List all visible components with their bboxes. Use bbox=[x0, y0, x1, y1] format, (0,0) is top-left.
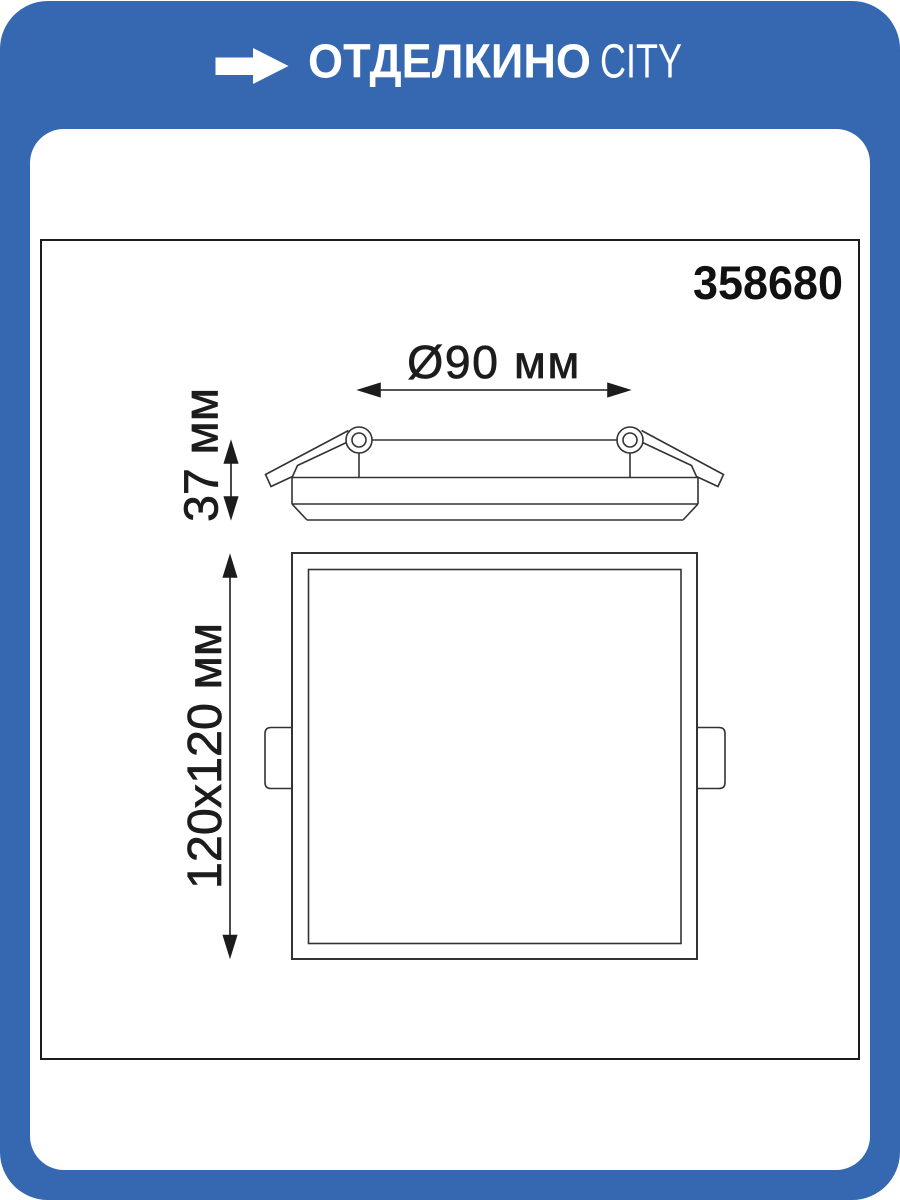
svg-text:CITY: CITY bbox=[600, 36, 682, 89]
svg-text:Ø90 мм: Ø90 мм bbox=[407, 336, 581, 388]
svg-text:358680: 358680 bbox=[693, 257, 843, 310]
svg-text:37 мм: 37 мм bbox=[175, 388, 229, 522]
svg-text:ОТДЕЛКИНО: ОТДЕЛКИНО bbox=[308, 36, 591, 89]
svg-text:120x120 мм: 120x120 мм bbox=[178, 623, 232, 889]
